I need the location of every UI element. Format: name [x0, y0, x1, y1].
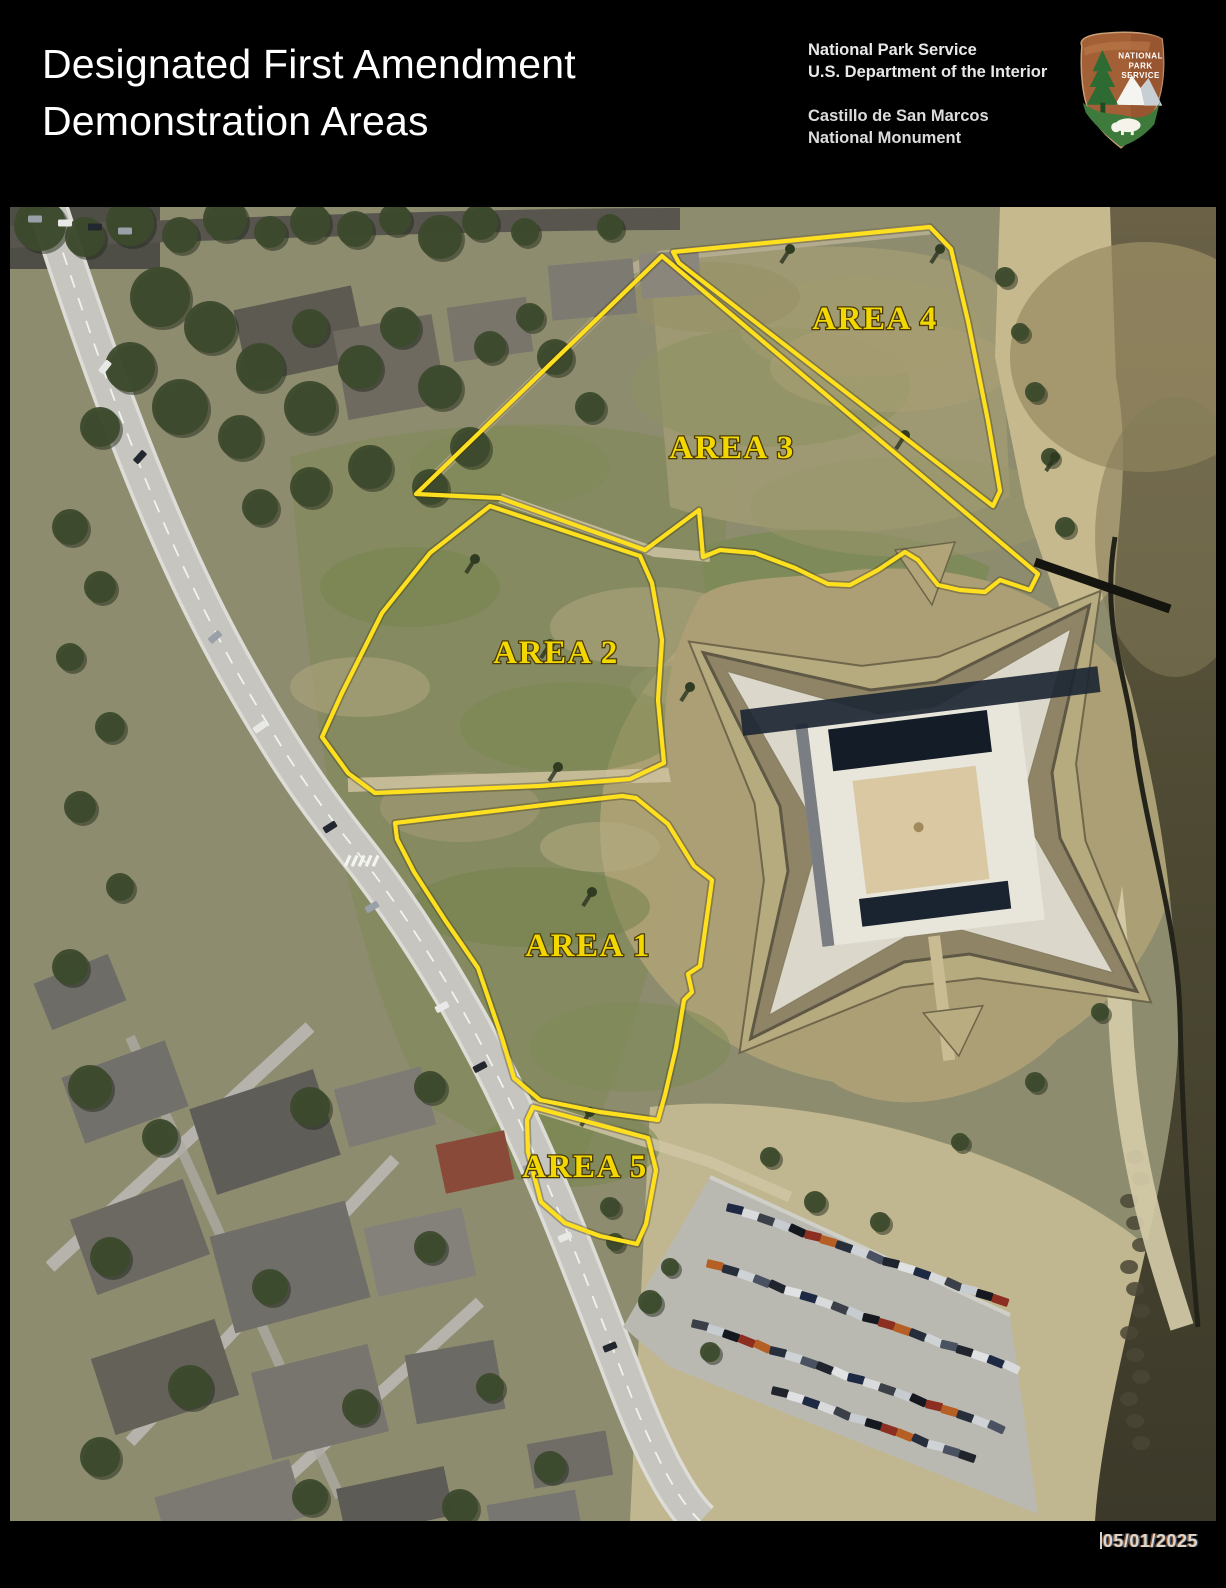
area-2-label: AREA 2: [493, 635, 618, 671]
map-document-page: Designated First Amendment Demonstration…: [0, 0, 1226, 1588]
park-name-line-2: National Monument: [808, 128, 1047, 150]
nps-arrowhead-icon: NATIONAL PARK SERVICE: [1072, 26, 1170, 154]
logo-text-national: NATIONAL: [1118, 52, 1163, 61]
title-line-2: Demonstration Areas: [42, 93, 576, 150]
agency-line-2: U.S. Department of the Interior: [808, 62, 1047, 84]
area-1-label: AREA 1: [525, 928, 650, 964]
date-stamp: 05/01/2025: [1100, 1531, 1198, 1552]
page-title: Designated First Amendment Demonstration…: [42, 36, 576, 150]
logo-text-service: SERVICE: [1121, 71, 1160, 80]
park-name-line-1: Castillo de San Marcos: [808, 106, 1047, 128]
area-5-label: AREA 5: [522, 1149, 647, 1185]
title-line-1: Designated First Amendment: [42, 36, 576, 93]
map-svg: AREA 3 AREA 4 AREA 2 AREA 1 AREA 5: [10, 207, 1216, 1521]
logo-text-park: PARK: [1129, 61, 1153, 70]
area-4-label: AREA 4: [812, 301, 937, 337]
aerial-map: AREA 3 AREA 4 AREA 2 AREA 1 AREA 5: [10, 207, 1216, 1521]
area-3-label: AREA 3: [669, 430, 794, 466]
agency-line-1: National Park Service: [808, 40, 1047, 62]
agency-block: National Park Service U.S. Department of…: [808, 40, 1047, 149]
